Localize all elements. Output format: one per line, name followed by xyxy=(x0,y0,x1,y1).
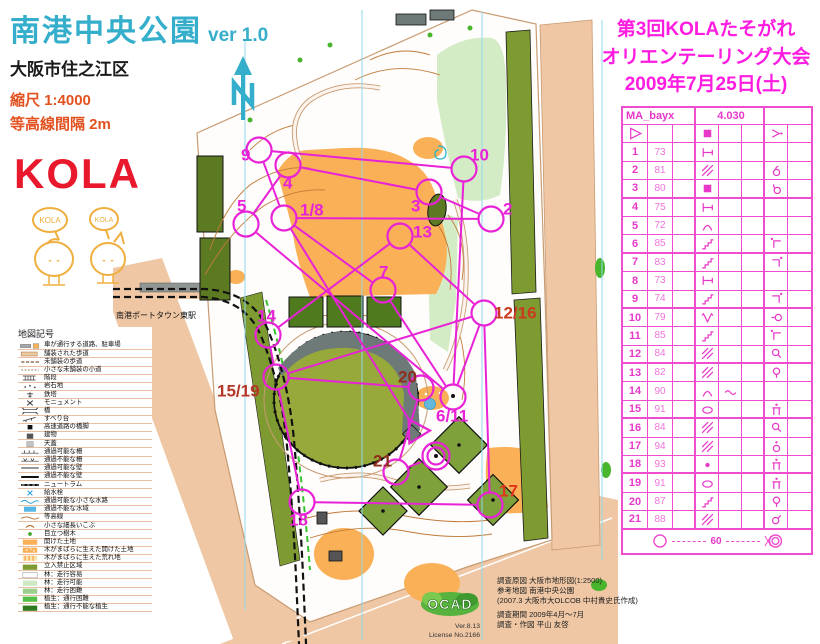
control-number-label: 21 xyxy=(373,451,392,470)
legend-item-label: 舗装された歩道 xyxy=(44,351,89,357)
control-number-label: 12/16 xyxy=(494,303,537,322)
card-cell-number: 19 xyxy=(623,474,648,492)
card-cell-e xyxy=(719,235,742,253)
card-cell-h xyxy=(788,493,811,511)
ocad-logo-text: OCAD xyxy=(427,596,472,612)
card-cell-h xyxy=(788,419,811,437)
card-cell-f xyxy=(742,291,765,309)
card-cell-d xyxy=(696,162,719,180)
card-cell-h xyxy=(788,272,811,290)
card-cell-d xyxy=(696,272,719,290)
card-cell-f xyxy=(742,401,765,419)
card-cell-c xyxy=(673,401,696,419)
event-title-line1: 第3回KOLAたそがれ xyxy=(594,16,818,44)
tram-symbol xyxy=(18,481,44,489)
card-cell-g xyxy=(765,180,788,198)
legend-item-label: 木がまばらに生えた荒れ地 xyxy=(44,555,121,561)
card-cell-e xyxy=(719,346,742,364)
card-cell-number: 9 xyxy=(623,291,648,309)
card-cell-code: 73 xyxy=(648,272,673,290)
card-cell-code: 83 xyxy=(648,254,673,272)
card-cell-code: 88 xyxy=(648,511,673,529)
card-cell-e xyxy=(719,309,742,327)
card-cell-code: 75 xyxy=(648,199,673,217)
card-cell-e xyxy=(719,254,742,272)
map-version: ver 1.0 xyxy=(208,25,268,46)
card-cell-d xyxy=(696,419,719,437)
passable-fence-symbol xyxy=(18,448,44,456)
card-cell-f xyxy=(742,382,765,400)
card-cell-h xyxy=(788,346,811,364)
open-land-symbol xyxy=(18,538,44,546)
control-number-label: 20 xyxy=(398,367,417,386)
card-cell-f xyxy=(742,180,765,198)
card-cell-e xyxy=(719,217,742,235)
impassable-wall-symbol xyxy=(18,473,44,481)
card-cell-d xyxy=(696,291,719,309)
legend-item-label: 岩石地 xyxy=(44,383,63,389)
legend-item-label: 天蓋 xyxy=(44,441,57,447)
pier-symbol xyxy=(18,423,44,431)
card-cell-d xyxy=(696,143,719,161)
event-title-line3: 2009年7月25日(土) xyxy=(594,71,818,99)
card-cell-h xyxy=(788,364,811,382)
card-cell-c xyxy=(673,217,696,235)
card-cell-g xyxy=(765,291,788,309)
mascots-illustration: KOLA KOLA xyxy=(18,196,142,294)
card-cell-c xyxy=(673,235,696,253)
card-cell-e xyxy=(719,382,742,400)
card-cell-e xyxy=(719,511,742,529)
card-cell-h xyxy=(788,474,811,492)
card-cell-number: 16 xyxy=(623,419,648,437)
legend-item-label: モニュメント xyxy=(44,400,82,406)
card-course-length: 4.030 xyxy=(696,108,765,125)
control-number-label: 10 xyxy=(470,145,489,164)
legend-item-label: 木がまばらに生えた開けた土地 xyxy=(44,547,133,553)
card-cell-number: 17 xyxy=(623,438,648,456)
card-cell-c xyxy=(673,474,696,492)
control-number-label: 7 xyxy=(379,262,388,281)
legend-title: 地図記号 xyxy=(18,327,152,340)
card-cell-code xyxy=(648,125,673,143)
card-cell-g xyxy=(765,382,788,400)
card-cell-e xyxy=(719,364,742,382)
card-cell-f xyxy=(742,364,765,382)
card-cell-c xyxy=(673,438,696,456)
rough-scattered-symbol xyxy=(18,554,44,562)
veg-hard-symbol xyxy=(18,595,44,603)
paved-symbol xyxy=(18,350,44,358)
card-cell-e xyxy=(719,474,742,492)
card-cell-number: 6 xyxy=(623,235,648,253)
forest-ok-symbol xyxy=(18,579,44,587)
card-cell-d xyxy=(696,401,719,419)
legend-item-label: 未舗装の歩道 xyxy=(44,359,82,365)
card-cell-f xyxy=(742,199,765,217)
card-cell-d xyxy=(696,180,719,198)
legend-item-label: 通過可能な小さな水路 xyxy=(44,498,108,504)
control-number-label: 5 xyxy=(237,196,246,215)
card-cell-g xyxy=(765,438,788,456)
legend-item-label: 給水栓 xyxy=(44,490,63,496)
card-cell-number: 18 xyxy=(623,456,648,474)
mascot-bubble-1: KOLA xyxy=(39,216,61,225)
forest-hard-symbol xyxy=(18,587,44,595)
card-cell-f xyxy=(742,143,765,161)
unpaved-symbol xyxy=(18,358,44,366)
bridge-symbol xyxy=(18,407,44,415)
map-legend: 地図記号 車が通行する道路、駐車場舗装された歩道未舗装の歩道小さな未舗装の小道階… xyxy=(18,327,152,612)
card-cell-code: 87 xyxy=(648,493,673,511)
ocad-block: OCAD Ver.8.13 License No.2166 xyxy=(416,591,480,640)
card-cell-f xyxy=(742,456,765,474)
card-cell-f xyxy=(742,272,765,290)
card-cell-h xyxy=(788,254,811,272)
canopy-symbol xyxy=(18,440,44,448)
card-cell-number: 5 xyxy=(623,217,648,235)
legend-item-label: 鉄塔 xyxy=(44,392,57,398)
small-knoll-symbol xyxy=(18,522,44,530)
rocky-symbol xyxy=(18,383,44,391)
card-cell-f xyxy=(742,346,765,364)
legend-item-label: 林：走行困難 xyxy=(44,588,82,594)
card-cell-d xyxy=(696,511,719,529)
card-cell-number: 12 xyxy=(623,346,648,364)
card-cell-e xyxy=(719,438,742,456)
card-cell-f xyxy=(742,474,765,492)
card-cell-f xyxy=(742,309,765,327)
card-cell-h xyxy=(788,180,811,198)
finish-distance: 60 xyxy=(710,536,721,547)
control-number-label: 9 xyxy=(241,145,250,164)
card-cell-g xyxy=(765,364,788,382)
event-title: 第3回KOLAたそがれ オリエンテーリング大会 2009年7月25日(土) xyxy=(594,16,818,99)
card-cell-g xyxy=(765,327,788,345)
card-cell-c xyxy=(673,254,696,272)
map-title: 南港中央公園 xyxy=(10,15,202,48)
card-cell-h xyxy=(788,199,811,217)
forbidden-symbol xyxy=(18,563,44,571)
card-cell-e xyxy=(719,401,742,419)
legend-item-label: 車が通行する道路、駐車場 xyxy=(44,342,121,348)
control-card-grid: MA_bayx 4.030 17328138047557268578387397… xyxy=(621,106,813,555)
card-cell-c xyxy=(673,272,696,290)
hydrant-symbol xyxy=(18,489,44,497)
card-cell-e xyxy=(719,291,742,309)
passable-wall-symbol xyxy=(18,464,44,472)
card-cell-c xyxy=(673,493,696,511)
ocad-logo: OCAD xyxy=(420,591,480,617)
legend-item-label: ニュートラム xyxy=(44,482,82,488)
card-cell-g xyxy=(765,401,788,419)
card-cell-g xyxy=(765,199,788,217)
water-symbol xyxy=(18,505,44,513)
card-cell-h xyxy=(788,143,811,161)
monument-symbol xyxy=(18,399,44,407)
control-number-label: 17 xyxy=(499,481,518,500)
card-cell-h xyxy=(788,401,811,419)
card-cell-d xyxy=(696,346,719,364)
card-cell-number: 4 xyxy=(623,199,648,217)
legend-item-label: 林：走行容易 xyxy=(44,572,82,578)
card-cell-number: 11 xyxy=(623,327,648,345)
legend-item-label: 植生：通行困難 xyxy=(44,596,89,602)
card-cell-code: 94 xyxy=(648,438,673,456)
veg-impassable-symbol xyxy=(18,604,44,612)
card-cell-h xyxy=(788,309,811,327)
legend-item-label: 通過可能な柵 xyxy=(44,449,82,455)
card-class-name: MA_bayx xyxy=(623,108,696,125)
slide-symbol xyxy=(18,415,44,423)
legend-item-label: 目立つ樹木 xyxy=(44,531,76,537)
control-number-label: 14 xyxy=(257,306,276,325)
card-cell-c xyxy=(673,327,696,345)
card-cell-d xyxy=(696,364,719,382)
card-cell-f xyxy=(742,327,765,345)
card-cell-code: 93 xyxy=(648,456,673,474)
credit-ref-map: 参考地図 南港中央公園 xyxy=(497,586,638,596)
legend-item-label: 林：走行可能 xyxy=(44,580,82,586)
card-cell-g xyxy=(765,254,788,272)
card-cell-g xyxy=(765,474,788,492)
card-cell-number xyxy=(623,125,648,143)
legend-item-label: 通過不能な壁 xyxy=(44,473,82,479)
card-cell-c xyxy=(673,419,696,437)
control-number-label: 6/11 xyxy=(436,406,468,425)
course-leg xyxy=(297,218,477,219)
card-cell-number: 3 xyxy=(623,180,648,198)
card-cell-number: 10 xyxy=(623,309,648,327)
card-cell-d xyxy=(696,438,719,456)
card-cell-d xyxy=(696,382,719,400)
card-cell-number: 20 xyxy=(623,493,648,511)
card-cell-c xyxy=(673,162,696,180)
card-cell-number: 21 xyxy=(623,511,648,529)
card-cell-h xyxy=(788,382,811,400)
contour-symbol xyxy=(18,514,44,522)
page: 南港中央公園ver 1.0 大阪市住之江区 縮尺 1:4000 等高線間隔 2m… xyxy=(0,0,820,644)
card-cell-e xyxy=(719,419,742,437)
card-cell-e xyxy=(719,199,742,217)
ocad-version: Ver.8.13 xyxy=(416,622,480,631)
card-cell-code: 74 xyxy=(648,291,673,309)
card-cell-h xyxy=(788,291,811,309)
card-cell-d xyxy=(696,235,719,253)
card-cell-d xyxy=(696,217,719,235)
legend-item-label: 通過不能な柵 xyxy=(44,457,82,463)
building-symbol xyxy=(18,432,44,440)
card-cell-h xyxy=(788,438,811,456)
legend-item-label: 立入禁止区域 xyxy=(44,563,82,569)
north-arrow-icon xyxy=(226,56,260,120)
card-cell-c xyxy=(673,309,696,327)
control-number-label: 15/19 xyxy=(217,381,260,400)
card-cell-f xyxy=(742,511,765,529)
card-cell-h xyxy=(788,327,811,345)
control-number-label: 4 xyxy=(283,173,293,192)
kola-logo: KOLA xyxy=(14,150,141,198)
card-cell-c xyxy=(673,143,696,161)
event-title-line2: オリエンテーリング大会 xyxy=(594,44,818,72)
card-cell-f xyxy=(742,254,765,272)
legend-item-label: 小さな細長いこぶ xyxy=(44,523,95,529)
card-cell-d xyxy=(696,309,719,327)
legend-item-label: 通過不能な水域 xyxy=(44,506,89,512)
credits-block: 調査原図 大阪市地形図(1:2500) 参考地図 南港中央公園 (2007.3 … xyxy=(497,576,638,630)
small-path-symbol xyxy=(18,366,44,374)
card-cell-c xyxy=(673,346,696,364)
card-cell-g xyxy=(765,235,788,253)
card-cell-code: 82 xyxy=(648,364,673,382)
card-cell-f xyxy=(742,125,765,143)
card-cell-f xyxy=(742,438,765,456)
card-cell-code: 79 xyxy=(648,309,673,327)
control-description-card: MA_bayx 4.030 17328138047557268578387397… xyxy=(621,106,813,555)
station-label: 南港ポートタウン東駅 xyxy=(116,310,196,320)
control-number-label: 2 xyxy=(503,199,512,218)
card-cell-code: 81 xyxy=(648,162,673,180)
legend-item-label: 建物 xyxy=(44,432,57,438)
card-cell-e xyxy=(719,143,742,161)
card-cell-d xyxy=(696,474,719,492)
card-cell-code: 85 xyxy=(648,327,673,345)
card-cell-f xyxy=(742,217,765,235)
legend-rows: 車が通行する道路、駐車場舗装された歩道未舗装の歩道小さな未舗装の小道階段岩石地鉄… xyxy=(18,342,152,612)
card-cell-g xyxy=(765,419,788,437)
legend-item-label: 通過可能な壁 xyxy=(44,465,82,471)
card-cell-c xyxy=(673,364,696,382)
card-cell-code: 90 xyxy=(648,382,673,400)
legend-item-label: 開けた土地 xyxy=(44,539,76,545)
card-cell-h xyxy=(788,162,811,180)
card-cell-number: 15 xyxy=(623,401,648,419)
control-number-label: 13 xyxy=(413,222,432,241)
card-cell-c xyxy=(673,125,696,143)
card-cell-h xyxy=(788,511,811,529)
tree-symbol xyxy=(18,530,44,538)
legend-item-label: 植生：通行不能な植生 xyxy=(44,604,108,610)
credit-survey-base: 調査原図 大阪市地形図(1:2500) xyxy=(497,576,638,586)
card-cell-c xyxy=(673,382,696,400)
card-cell-g xyxy=(765,309,788,327)
card-cell-e xyxy=(719,125,742,143)
legend-item-label: 高速道路の橋脚 xyxy=(44,424,89,430)
card-cell-code: 72 xyxy=(648,217,673,235)
open-scattered-symbol xyxy=(18,546,44,554)
card-cell-e xyxy=(719,180,742,198)
small-watercourse-symbol xyxy=(18,497,44,505)
control-number-label: 18 xyxy=(289,510,308,529)
card-cell-code: 91 xyxy=(648,401,673,419)
card-cell-h xyxy=(788,456,811,474)
legend-item-label: 階段 xyxy=(44,375,57,381)
credit-ref-note: (2007.3 大阪市大OLCOB 中村貴史氏作成) xyxy=(497,596,638,606)
legend-item-label: 橋 xyxy=(44,408,50,414)
control-number-label: 3 xyxy=(411,196,420,215)
legend-item-label: すべり台 xyxy=(44,416,69,422)
card-cell-number: 1 xyxy=(623,143,648,161)
card-cell-number: 7 xyxy=(623,254,648,272)
card-cell-e xyxy=(719,272,742,290)
card-cell-e xyxy=(719,456,742,474)
card-cell-f xyxy=(742,235,765,253)
forest-easy-symbol xyxy=(18,571,44,579)
card-cell-number: 2 xyxy=(623,162,648,180)
card-cell-f xyxy=(742,493,765,511)
credit-author: 調査・作図 平山 友啓 xyxy=(497,620,638,630)
card-cell-code: 91 xyxy=(648,474,673,492)
card-cell-c xyxy=(673,199,696,217)
card-cell-g xyxy=(765,125,788,143)
impassable-fence-symbol xyxy=(18,456,44,464)
legend-item-label: 等高線 xyxy=(44,514,63,520)
card-cell-code: 84 xyxy=(648,419,673,437)
card-cell-g xyxy=(765,217,788,235)
steps-symbol xyxy=(18,374,44,382)
card-cell-number: 8 xyxy=(623,272,648,290)
card-cell-c xyxy=(673,180,696,198)
card-cell-f xyxy=(742,162,765,180)
card-cell-d xyxy=(696,327,719,345)
card-cell-c xyxy=(673,511,696,529)
card-cell-d xyxy=(696,254,719,272)
card-cell-number: 13 xyxy=(623,364,648,382)
card-cell-f xyxy=(742,419,765,437)
card-cell-c xyxy=(673,291,696,309)
card-cell-e xyxy=(719,162,742,180)
road-symbol xyxy=(18,342,44,350)
card-cell-g xyxy=(765,162,788,180)
card-cell-d xyxy=(696,125,719,143)
card-cell-h xyxy=(788,217,811,235)
card-cell-g xyxy=(765,272,788,290)
card-cell-h xyxy=(788,235,811,253)
card-cell-g xyxy=(765,143,788,161)
ocad-license: License No.2166 xyxy=(416,631,480,640)
credit-period: 調査期間 2009年4月～7月 xyxy=(497,610,638,620)
card-cell-code: 85 xyxy=(648,235,673,253)
card-cell-g xyxy=(765,346,788,364)
card-cell-h xyxy=(788,125,811,143)
card-cell-g xyxy=(765,456,788,474)
card-cell-d xyxy=(696,493,719,511)
card-cell-number: 14 xyxy=(623,382,648,400)
card-cell-g xyxy=(765,493,788,511)
legend-item: 植生：通行不能な植生 xyxy=(18,604,152,612)
card-cell-c xyxy=(673,456,696,474)
pylon-symbol xyxy=(18,391,44,399)
card-cell-g xyxy=(765,511,788,529)
legend-item-label: 小さな未舗装の小道 xyxy=(44,367,102,373)
mascot-bubble-2: KOLA xyxy=(95,217,114,224)
control-number-label: 1/8 xyxy=(300,200,324,219)
card-cell-code: 80 xyxy=(648,180,673,198)
card-cell-d xyxy=(696,456,719,474)
card-cell-e xyxy=(719,327,742,345)
card-cell-e xyxy=(719,493,742,511)
card-cell-code: 73 xyxy=(648,143,673,161)
card-cell-d xyxy=(696,199,719,217)
card-header-blank xyxy=(765,108,811,125)
card-cell-code: 84 xyxy=(648,346,673,364)
card-finish-row: 60 xyxy=(623,530,811,553)
